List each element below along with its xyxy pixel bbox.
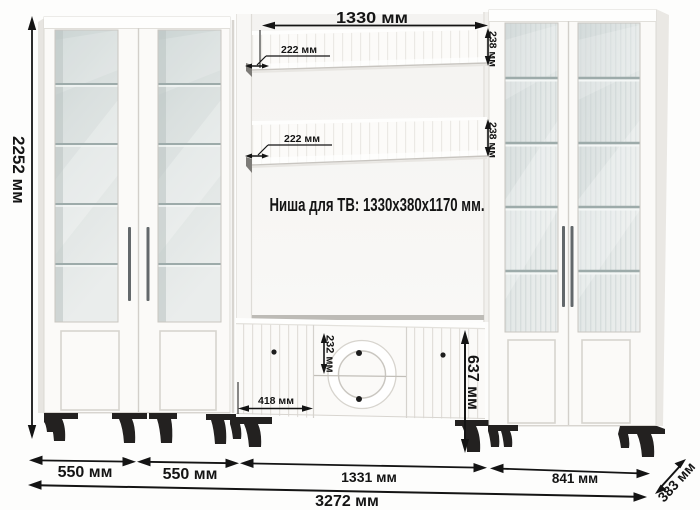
svg-text:2252 мм: 2252 мм (9, 136, 28, 204)
svg-text:1331 мм: 1331 мм (341, 469, 397, 485)
svg-text:550 мм: 550 мм (163, 466, 218, 483)
svg-text:238 мм: 238 мм (487, 31, 499, 67)
svg-text:841 мм: 841 мм (552, 471, 598, 486)
svg-text:Ниша для ТВ: 1330x380x1170 мм.: Ниша для ТВ: 1330x380x1170 мм. (270, 195, 485, 215)
svg-text:1330 мм: 1330 мм (336, 10, 408, 27)
svg-text:418 мм: 418 мм (258, 395, 294, 407)
svg-text:222 мм: 222 мм (281, 44, 317, 56)
svg-text:637 мм: 637 мм (464, 355, 481, 410)
svg-text:238 мм: 238 мм (487, 122, 499, 158)
svg-text:550 мм: 550 мм (58, 464, 113, 481)
svg-text:3272 мм: 3272 мм (315, 493, 379, 510)
svg-text:232 мм: 232 мм (324, 335, 336, 373)
svg-text:222 мм: 222 мм (284, 133, 320, 145)
